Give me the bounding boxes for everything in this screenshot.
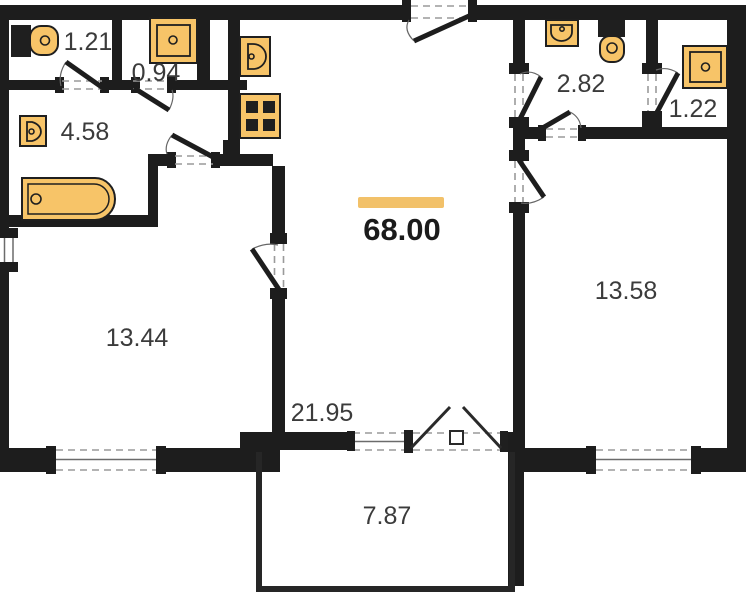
shower-tray-icon-2 <box>683 46 727 88</box>
floor-plan-canvas: 1.21 0.94 4.58 2.82 1.22 13.44 21.95 13.… <box>0 0 746 600</box>
door-bedroom-right <box>515 160 544 203</box>
stove-icon <box>240 94 280 138</box>
door-bedroom-left <box>252 244 284 291</box>
door-handle-icon <box>450 431 463 444</box>
area-label-bedroom-left: 13.44 <box>106 324 169 352</box>
bathtub-icon <box>22 178 115 220</box>
area-label-shower-left: 0.94 <box>132 59 181 87</box>
area-label-wc-left: 1.21 <box>64 28 113 56</box>
total-area-accent-bar <box>358 197 444 208</box>
toilet-icon-2 <box>598 20 625 62</box>
door-wc-right <box>515 72 541 121</box>
area-label-kitchen-living: 21.95 <box>291 399 354 427</box>
kitchen-sink-icon <box>240 37 270 76</box>
area-label-balcony: 7.87 <box>363 502 412 530</box>
total-area: 68.00 <box>358 197 444 247</box>
window-bedroom-left <box>56 450 156 470</box>
area-label-shower-right: 1.22 <box>669 95 718 123</box>
balcony-french-door <box>347 407 508 453</box>
window-bedroom-right <box>596 450 691 470</box>
door-wc-left <box>60 62 103 89</box>
washbasin-icon <box>20 116 46 146</box>
shower-tray-icon <box>150 18 197 63</box>
washbasin-icon-2 <box>546 20 578 46</box>
total-area-value: 68.00 <box>363 212 441 247</box>
area-label-bathroom: 4.58 <box>61 118 110 146</box>
window-left-wall <box>0 228 18 272</box>
floor-plan: 1.21 0.94 4.58 2.82 1.22 13.44 21.95 13.… <box>0 0 746 600</box>
area-label-bedroom-right: 13.58 <box>595 277 658 305</box>
entrance-door <box>407 6 469 41</box>
area-label-wc-right: 2.82 <box>557 70 606 98</box>
toilet-icon <box>11 25 58 57</box>
